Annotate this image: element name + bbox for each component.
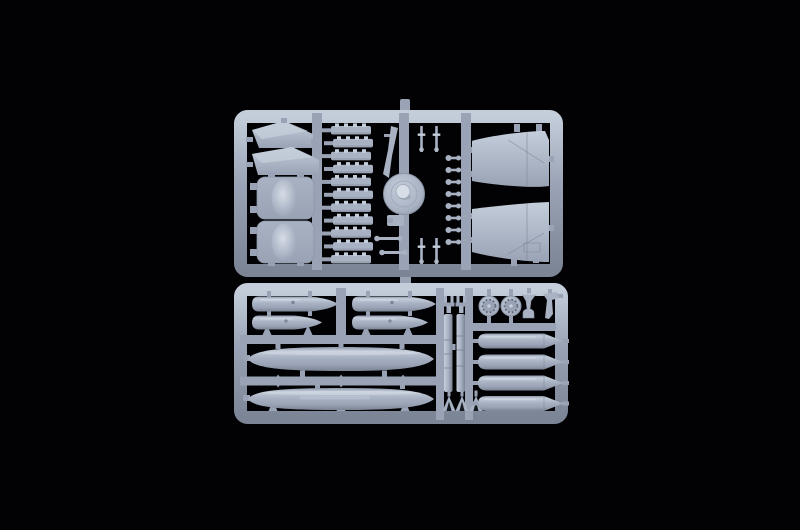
part-tank-half-large-2 (248, 388, 434, 410)
part-bulged-panel-1 (250, 172, 320, 219)
part-wheel-2 (501, 296, 521, 316)
part-wing-panel-lower (472, 202, 549, 262)
photo-canvas (0, 0, 800, 530)
part-rotodome-disc (384, 174, 425, 215)
sprue-photo (0, 0, 800, 530)
part-wing-panel-upper (472, 131, 549, 187)
part-wheel-1 (479, 296, 499, 316)
part-angle-bracket-small (387, 215, 404, 226)
part-bulged-panel-2 (250, 221, 320, 266)
part-tank-half-large-1 (248, 347, 434, 371)
